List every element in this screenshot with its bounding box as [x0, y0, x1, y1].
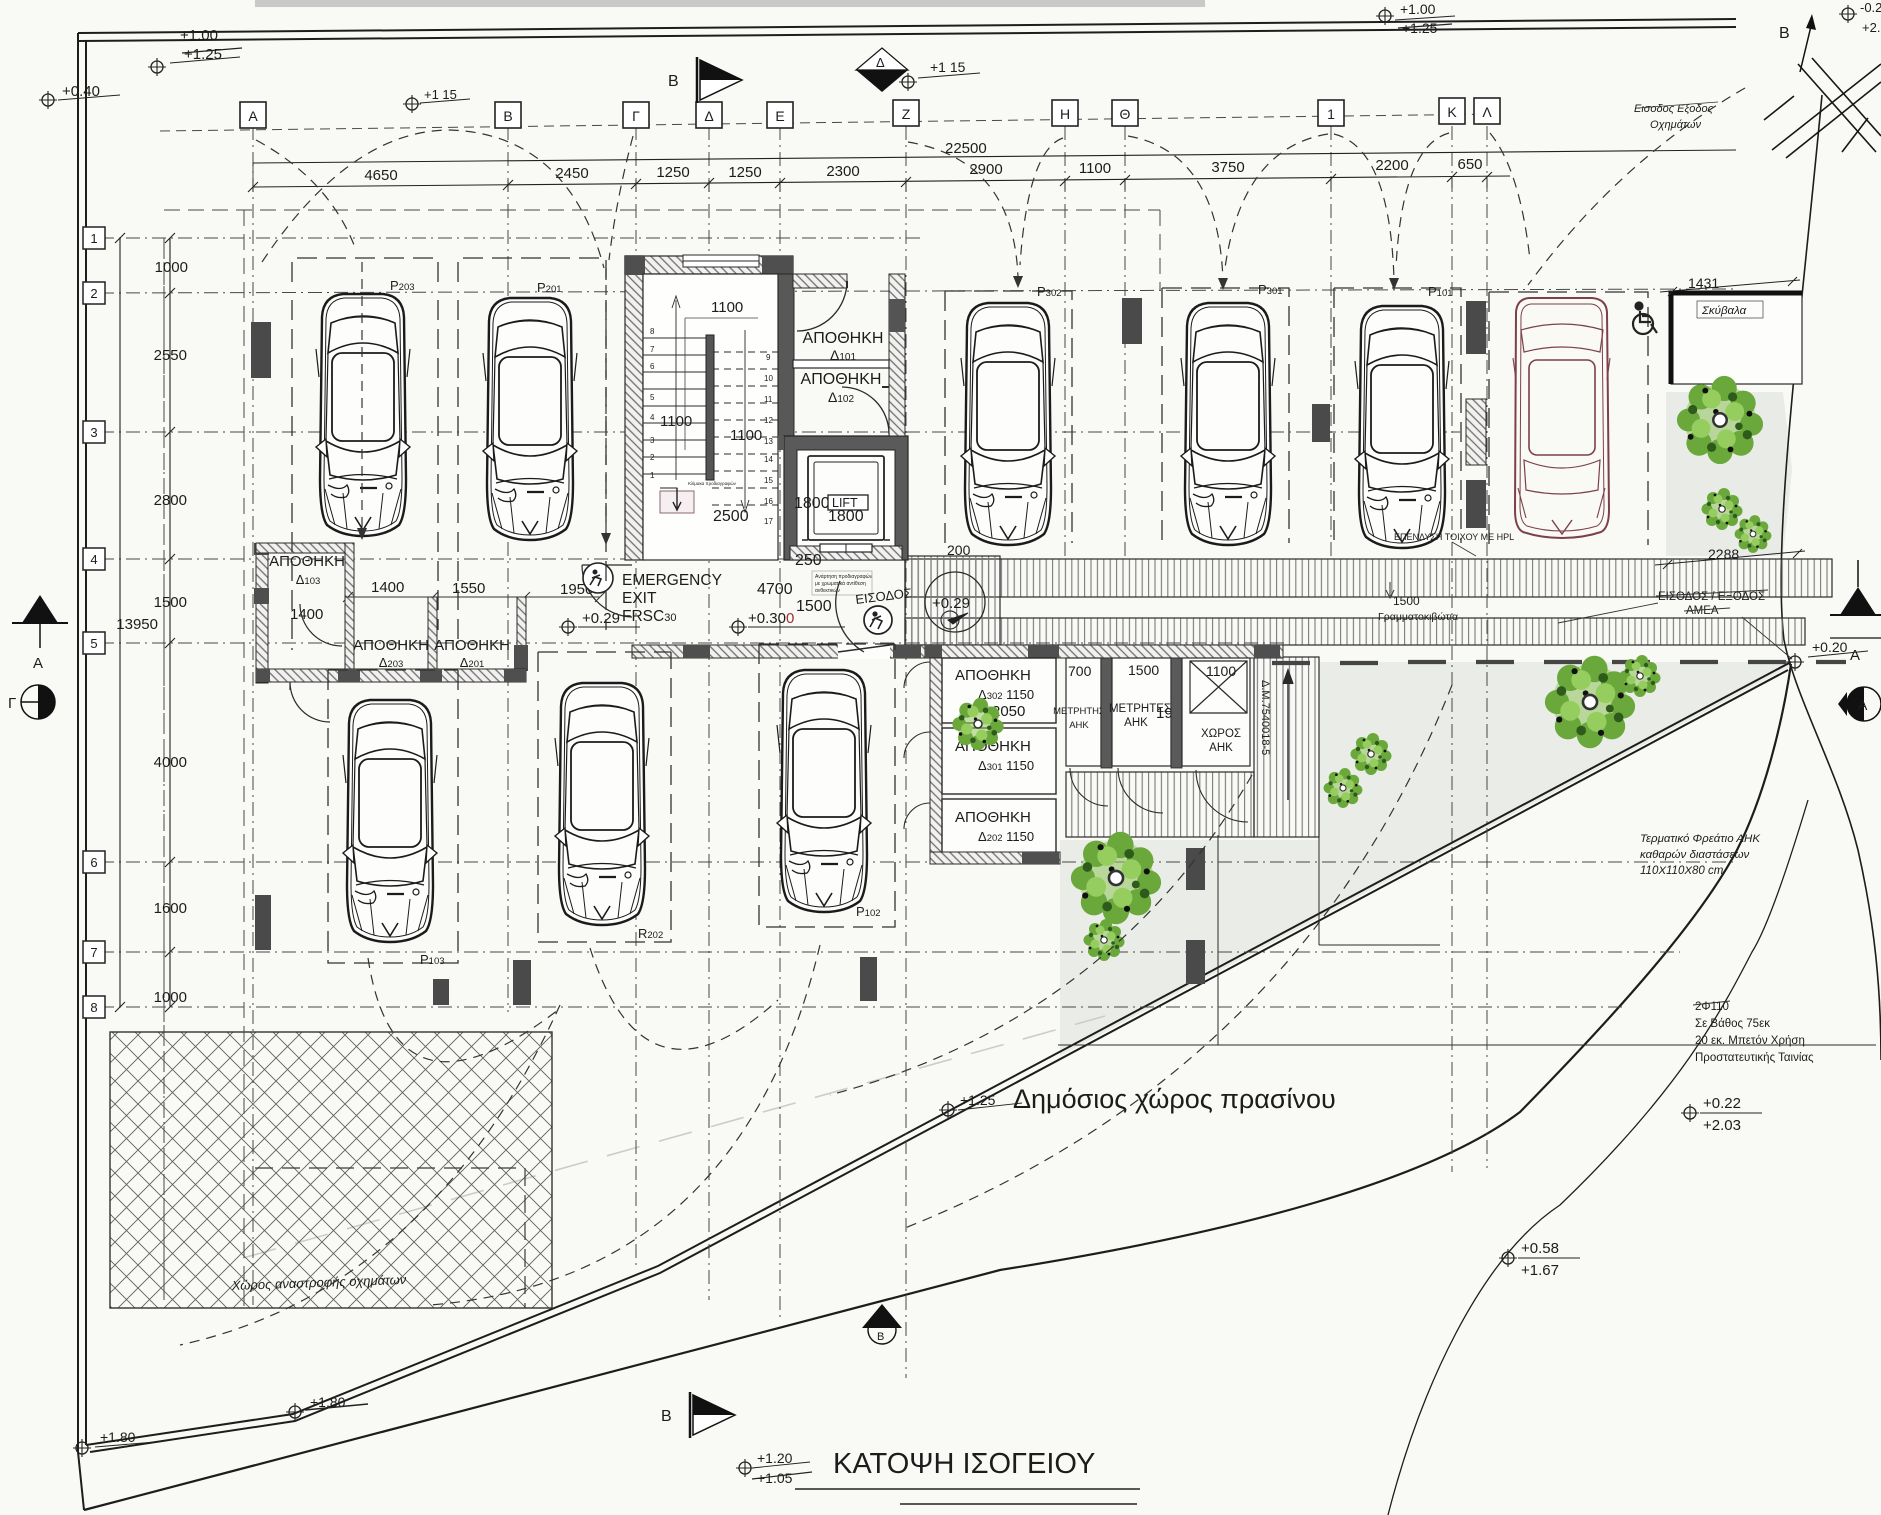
- svg-text:250: 250: [795, 552, 822, 569]
- svg-text:1250: 1250: [728, 164, 761, 181]
- svg-text:ΑΠΟΘΗΚΗ: ΑΠΟΘΗΚΗ: [955, 809, 1031, 826]
- svg-text:ΑΠΟΘΗΚΗ: ΑΠΟΘΗΚΗ: [955, 667, 1031, 684]
- svg-text:9: 9: [766, 353, 771, 362]
- svg-text:+2.1: +2.1: [1862, 20, 1881, 35]
- svg-text:Οχημάτων: Οχημάτων: [1650, 119, 1701, 131]
- svg-text:4: 4: [90, 552, 97, 567]
- svg-text:2500: 2500: [713, 508, 749, 525]
- svg-text:ΑΠΟΘΗΚΗ: ΑΠΟΘΗΚΗ: [269, 553, 345, 570]
- svg-text:με χρωματικά αντίθεση: με χρωματικά αντίθεση: [815, 580, 866, 587]
- svg-text:15: 15: [764, 476, 773, 485]
- svg-text:+0.29: +0.29: [582, 610, 620, 627]
- svg-text:+0.29: +0.29: [932, 595, 970, 612]
- svg-text:H: H: [1060, 106, 1070, 122]
- svg-text:1550: 1550: [452, 580, 485, 597]
- svg-text:3750: 3750: [1211, 159, 1244, 176]
- svg-text:B: B: [668, 73, 679, 90]
- svg-text:Δ: Δ: [704, 108, 713, 124]
- svg-text:14: 14: [764, 455, 773, 464]
- svg-text:ΑΗΚ: ΑΗΚ: [1069, 720, 1089, 731]
- svg-text:8: 8: [650, 327, 655, 336]
- svg-text:1500: 1500: [1128, 662, 1159, 678]
- svg-text:2: 2: [650, 453, 655, 462]
- svg-text:Γραμματοκιβώτια: Γραμματοκιβώτια: [1378, 611, 1458, 623]
- svg-text:Τερματικό Φρεάτιο ΑΗΚ: Τερματικό Φρεάτιο ΑΗΚ: [1640, 833, 1761, 845]
- svg-text:1000: 1000: [155, 259, 188, 276]
- svg-text:Κλίμακα προδιαγραφών: Κλίμακα προδιαγραφών: [688, 480, 737, 486]
- svg-text:1100: 1100: [1079, 160, 1111, 177]
- svg-text:B: B: [503, 108, 512, 124]
- svg-text:1100: 1100: [1206, 663, 1236, 679]
- svg-text:650: 650: [1457, 156, 1482, 173]
- svg-text:Z: Z: [902, 106, 911, 122]
- svg-text:A: A: [33, 655, 43, 672]
- svg-text:+0.58: +0.58: [1521, 1240, 1559, 1257]
- svg-text:+0.20: +0.20: [1812, 639, 1848, 655]
- svg-text:6: 6: [650, 362, 655, 371]
- svg-text:1400: 1400: [371, 579, 404, 596]
- svg-text:200: 200: [947, 542, 971, 558]
- svg-text:6: 6: [90, 855, 97, 870]
- svg-text:1500: 1500: [154, 594, 187, 611]
- svg-text:Εισοδος Εξοδος: Εισοδος Εξοδος: [1634, 103, 1714, 115]
- svg-text:2: 2: [90, 286, 97, 301]
- svg-text:ΑΜΕΑ: ΑΜΕΑ: [1686, 605, 1719, 617]
- svg-text:ΧΩΡΟΣ: ΧΩΡΟΣ: [1201, 728, 1241, 740]
- svg-text:4650: 4650: [364, 167, 397, 184]
- svg-text:22500: 22500: [945, 140, 987, 157]
- svg-text:3: 3: [650, 436, 655, 445]
- svg-text:K: K: [1447, 104, 1457, 120]
- svg-text:Λ: Λ: [1482, 104, 1492, 120]
- svg-text:ΚΑΤΟΨΗ ΙΣΟΓΕΙΟΥ: ΚΑΤΟΨΗ ΙΣΟΓΕΙΟΥ: [833, 1448, 1095, 1480]
- svg-text:1100: 1100: [730, 427, 762, 444]
- svg-text:Σε Βάθος 75εκ: Σε Βάθος 75εκ: [1695, 1018, 1770, 1030]
- svg-text:1: 1: [1327, 106, 1335, 122]
- svg-text:4: 4: [650, 413, 655, 422]
- svg-text:1100: 1100: [660, 413, 692, 430]
- svg-text:A: A: [248, 108, 258, 124]
- svg-text:+1.20: +1.20: [757, 1450, 793, 1466]
- svg-text:13950: 13950: [116, 616, 158, 633]
- svg-text:Σκύβαλα: Σκύβαλα: [1701, 305, 1747, 317]
- svg-text:7: 7: [90, 945, 97, 960]
- svg-text:LIFT: LIFT: [832, 496, 858, 510]
- svg-text:10: 10: [764, 374, 773, 383]
- svg-text:ΑΗΚ: ΑΗΚ: [1209, 742, 1233, 754]
- svg-text:ΑΠΟΘΗΚΗ: ΑΠΟΘΗΚΗ: [803, 330, 884, 347]
- svg-text:1250: 1250: [656, 164, 689, 181]
- svg-text:+1.67: +1.67: [1521, 1262, 1559, 1279]
- svg-text:1: 1: [90, 231, 97, 246]
- svg-text:ΜΕΤΡΗΤΗΣ: ΜΕΤΡΗΤΗΣ: [1053, 706, 1105, 717]
- svg-text:12: 12: [764, 416, 773, 425]
- svg-text:1400: 1400: [290, 606, 323, 623]
- svg-text:E: E: [775, 108, 784, 124]
- svg-text:Δ: Δ: [876, 55, 885, 70]
- svg-text:3: 3: [90, 425, 97, 440]
- svg-text:+1.25: +1.25: [1402, 20, 1438, 36]
- svg-text:1100: 1100: [711, 299, 743, 316]
- svg-text:Δημόσιος χώρος πρασίνου: Δημόσιος χώρος πρασίνου: [1013, 1084, 1336, 1114]
- svg-text:Δ.Μ.7540018-5: Δ.Μ.7540018-5: [1259, 680, 1271, 755]
- svg-text:+1 15: +1 15: [424, 87, 457, 102]
- svg-text:16: 16: [764, 497, 773, 506]
- svg-text:B: B: [1779, 25, 1790, 42]
- svg-text:+1.80: +1.80: [100, 1429, 136, 1445]
- svg-text:1600: 1600: [154, 900, 187, 917]
- svg-text:καθαρών διαστάσεων: καθαρών διαστάσεων: [1640, 849, 1750, 861]
- svg-text:A: A: [1850, 647, 1860, 664]
- svg-text:Δ202 1150: Δ202 1150: [978, 829, 1034, 844]
- svg-text:4000: 4000: [154, 754, 187, 771]
- svg-text:1: 1: [650, 471, 655, 480]
- svg-text:17: 17: [764, 517, 773, 526]
- svg-text:ΑΠΟΘΗΚΗ: ΑΠΟΘΗΚΗ: [801, 371, 882, 388]
- svg-text:5: 5: [90, 636, 97, 651]
- svg-text:13: 13: [764, 437, 773, 446]
- svg-text:+0.300: +0.300: [748, 610, 794, 627]
- svg-text:2550: 2550: [154, 347, 187, 364]
- svg-text:EMERGENCY: EMERGENCY: [622, 572, 722, 589]
- svg-text:ΑΗΚ: ΑΗΚ: [1124, 717, 1148, 729]
- svg-text:ΑΠΟΘΗΚΗ: ΑΠΟΘΗΚΗ: [353, 637, 429, 654]
- svg-text:11: 11: [764, 395, 773, 404]
- svg-text:EXIT: EXIT: [622, 590, 657, 607]
- svg-text:+1.00: +1.00: [180, 27, 218, 44]
- svg-text:7: 7: [650, 345, 655, 354]
- svg-text:B: B: [661, 1408, 672, 1425]
- svg-text:20 εκ. Μπετόν Χρήση: 20 εκ. Μπετόν Χρήση: [1695, 1035, 1805, 1047]
- svg-text:-0.2: -0.2: [1860, 0, 1881, 15]
- svg-text:Γ: Γ: [8, 695, 16, 712]
- svg-text:Προστατευτικής Ταινίας: Προστατευτικής Ταινίας: [1695, 1052, 1814, 1064]
- svg-text:Γ: Γ: [632, 108, 640, 124]
- svg-text:+1.00: +1.00: [1400, 1, 1436, 17]
- svg-text:2200: 2200: [1375, 157, 1408, 174]
- svg-text:1000: 1000: [154, 989, 187, 1006]
- svg-text:5: 5: [650, 393, 655, 402]
- svg-text:+2.03: +2.03: [1703, 1117, 1741, 1134]
- svg-text:ΕΠΕΝΔΥΣΗ ΤΟΙΧΟΥ ΜΕ HPL: ΕΠΕΝΔΥΣΗ ΤΟΙΧΟΥ ΜΕ HPL: [1394, 532, 1514, 542]
- svg-text:Δ301 1150: Δ301 1150: [978, 758, 1034, 773]
- svg-text:+1.25: +1.25: [960, 1092, 996, 1108]
- svg-text:2900: 2900: [969, 161, 1002, 178]
- svg-text:+1 15: +1 15: [930, 59, 966, 75]
- svg-text:4700: 4700: [757, 581, 793, 598]
- svg-text:A: A: [1858, 697, 1868, 713]
- svg-text:1500: 1500: [796, 598, 832, 615]
- svg-text:2300: 2300: [826, 163, 859, 180]
- svg-text:110Χ110Χ80 cm: 110Χ110Χ80 cm: [1640, 865, 1724, 877]
- svg-text:Ανάρτηση προδιαγραφών: Ανάρτηση προδιαγραφών: [815, 573, 873, 580]
- svg-text:B: B: [877, 1331, 884, 1343]
- svg-text:+0.22: +0.22: [1703, 1095, 1741, 1112]
- svg-text:Θ: Θ: [1120, 106, 1131, 122]
- svg-text:ΑΠΟΘΗΚΗ: ΑΠΟΘΗΚΗ: [434, 637, 510, 654]
- svg-text:2800: 2800: [154, 492, 187, 509]
- svg-text:1800: 1800: [794, 495, 830, 512]
- svg-text:1500: 1500: [1393, 594, 1420, 608]
- svg-text:Δ302 1150: Δ302 1150: [978, 687, 1034, 702]
- svg-text:700: 700: [1068, 663, 1092, 679]
- svg-text:8: 8: [90, 1000, 97, 1015]
